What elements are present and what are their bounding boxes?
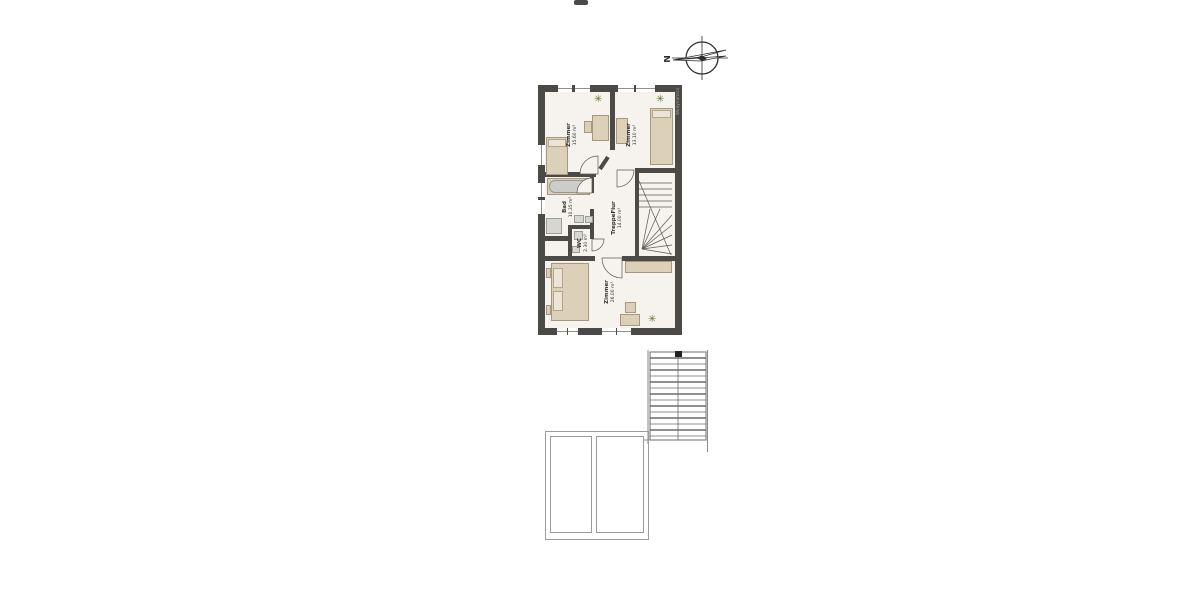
room-label-zimmer-topright: Zimmer 13.10 m² [626,123,639,147]
room-area: 14.00 m² [618,201,624,234]
room-name: TreppeFlur [611,201,618,234]
room-name: Zimmer [566,123,573,147]
cropped-top-artifact [574,0,588,5]
bed-pillow [652,110,671,118]
room-area: 10.35 m² [569,197,575,218]
room-label-zimmer-topleft: Zimmer 15.60 m² [566,123,579,147]
bed-pillow [548,139,566,147]
window [538,183,545,197]
room-name: Bad [562,197,569,218]
room-label-bad: Bad 10.35 m² [562,197,575,218]
bed-pillow [553,268,563,288]
room-label-zimmer-bottom: Zimmer 26.00 m² [604,280,617,304]
wall-stair-left [635,168,639,256]
room-name: Zimmer [626,123,633,147]
room-name: Zimmer [604,280,611,304]
nightstand [546,305,551,315]
room-area: 13.10 m² [633,123,639,147]
wardrobe [625,261,672,273]
roof-panel-left [550,436,592,533]
floorplan-canvas: ✳ ✳ ✳ [0,0,1200,600]
compass: N [664,34,734,84]
plant-icon: ✳ [656,95,664,105]
wall-divider-top-rooms [610,92,615,150]
room-name: WC [577,234,584,252]
wall-below-room-topright [635,168,675,173]
watermark: Wodynamics [675,88,680,115]
bed-pillow [553,291,563,311]
shower [546,218,562,234]
window [538,145,545,165]
window [568,328,578,335]
wall-bottomroom-top-left [545,256,595,261]
plant-icon: ✳ [594,95,602,105]
desk [620,314,640,326]
sink [585,216,593,223]
plant-icon: ✳ [648,315,656,325]
wall-bad-right-upper [590,177,594,193]
room-area: 2.30 m² [584,234,590,252]
room-label-treppeflur: TreppeFlur 14.00 m² [611,201,624,234]
window [557,328,567,335]
room-label-wc: WC 2.30 m² [577,234,590,252]
bathtub [549,180,588,193]
window [602,328,616,335]
chair [584,121,592,133]
window [538,200,545,214]
window [617,328,631,335]
room-area: 26.00 m² [611,280,617,304]
floor-plan: ✳ ✳ ✳ [538,85,682,335]
roof-outline [545,431,649,540]
nightstand [546,268,551,278]
wall-wc-right [590,225,594,239]
chair [625,302,636,313]
window [575,85,590,92]
stair-start-marker [675,351,682,357]
roof-panel-right [596,436,644,533]
window [618,85,634,92]
desk [592,115,609,141]
window [636,85,655,92]
sink [574,215,584,223]
room-area: 15.60 m² [573,123,579,147]
window [558,85,572,92]
north-label: N [664,55,673,63]
